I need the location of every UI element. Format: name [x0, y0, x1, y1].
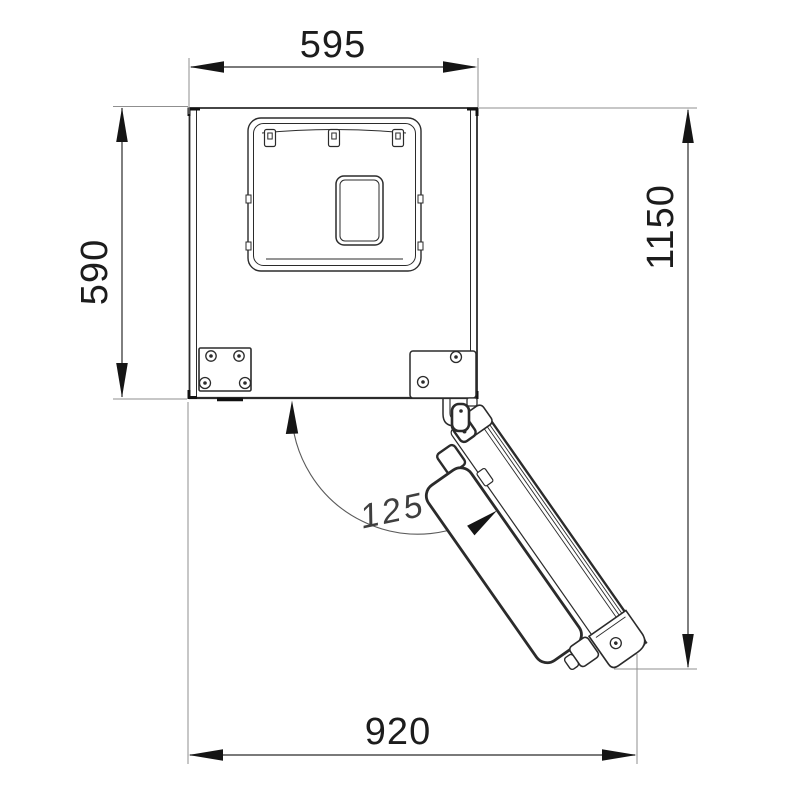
- angle-arc-start-arrow-icon: [286, 401, 298, 435]
- screw-center: [209, 354, 213, 358]
- dimension-label-right: 1150: [640, 184, 682, 270]
- right-hinge-bracket: [410, 351, 477, 434]
- screw-center: [203, 381, 207, 385]
- clip-tab-notch: [268, 133, 272, 139]
- dimension-arrow-icon: [602, 749, 637, 761]
- dimension-arrow-icon: [443, 61, 478, 73]
- dimension-arrow-icon: [116, 108, 128, 143]
- left-hinge-plate-body: [199, 348, 251, 391]
- dimension-left-depth: 590: [74, 107, 188, 400]
- dimension-label-top: 595: [300, 24, 366, 66]
- dimension-arrow-icon: [116, 363, 128, 398]
- dimension-label-left: 590: [74, 239, 116, 305]
- edge-tick: [246, 195, 251, 203]
- left-hinge-plate: [199, 348, 251, 391]
- clip-tab-notch: [396, 133, 400, 139]
- dispenser-recess-inner: [340, 180, 379, 241]
- edge-tick: [418, 195, 423, 203]
- screw-center: [243, 381, 247, 385]
- screw-center: [421, 380, 425, 384]
- top-panel: [246, 118, 423, 271]
- clip-tab-notch: [332, 133, 336, 139]
- dimension-arrow-icon: [682, 634, 694, 669]
- pivot-pin: [463, 430, 467, 434]
- corner-accent: [467, 109, 477, 116]
- edge-tick: [246, 242, 251, 250]
- clip-tabs: [265, 130, 404, 147]
- right-hinge-plate-body: [410, 351, 476, 398]
- screw-center: [237, 354, 241, 358]
- corner-accent: [189, 390, 197, 398]
- dispenser-recess-outer: [336, 176, 383, 245]
- right-hinge-foot: [467, 398, 477, 406]
- dimension-arrow-icon: [189, 749, 224, 761]
- screw-center: [454, 355, 458, 359]
- door-assembly: [399, 403, 650, 701]
- corner-accent: [189, 109, 200, 116]
- refrigerator-top-view-drawing: 125°: [0, 0, 800, 800]
- pivot-pin: [459, 409, 463, 413]
- edge-tick: [418, 242, 423, 250]
- technical-drawing-page: 125°: [0, 0, 800, 800]
- hinge-pivot-cup: [452, 404, 469, 431]
- dimension-arrow-icon: [682, 109, 694, 144]
- dimension-top-width: 595: [189, 24, 478, 114]
- dimension-label-bottom: 920: [365, 711, 431, 753]
- dimension-arrow-icon: [190, 61, 225, 73]
